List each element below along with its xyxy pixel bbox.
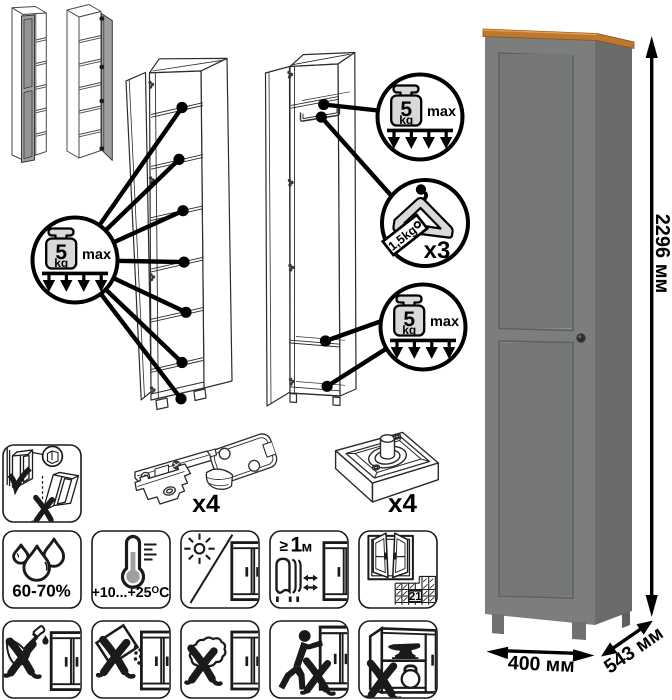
svg-text:60-70%: 60-70%: [12, 582, 71, 601]
svg-text:x4: x4: [388, 488, 417, 518]
svg-text:м: м: [302, 540, 313, 556]
svg-text:x4: x4: [192, 490, 220, 518]
svg-text:400 мм: 400 мм: [507, 652, 575, 677]
svg-text:≥: ≥: [280, 538, 289, 555]
svg-text:2296 мм: 2296 мм: [651, 214, 672, 294]
svg-text:21: 21: [409, 591, 422, 603]
svg-text:x3: x3: [424, 237, 451, 264]
